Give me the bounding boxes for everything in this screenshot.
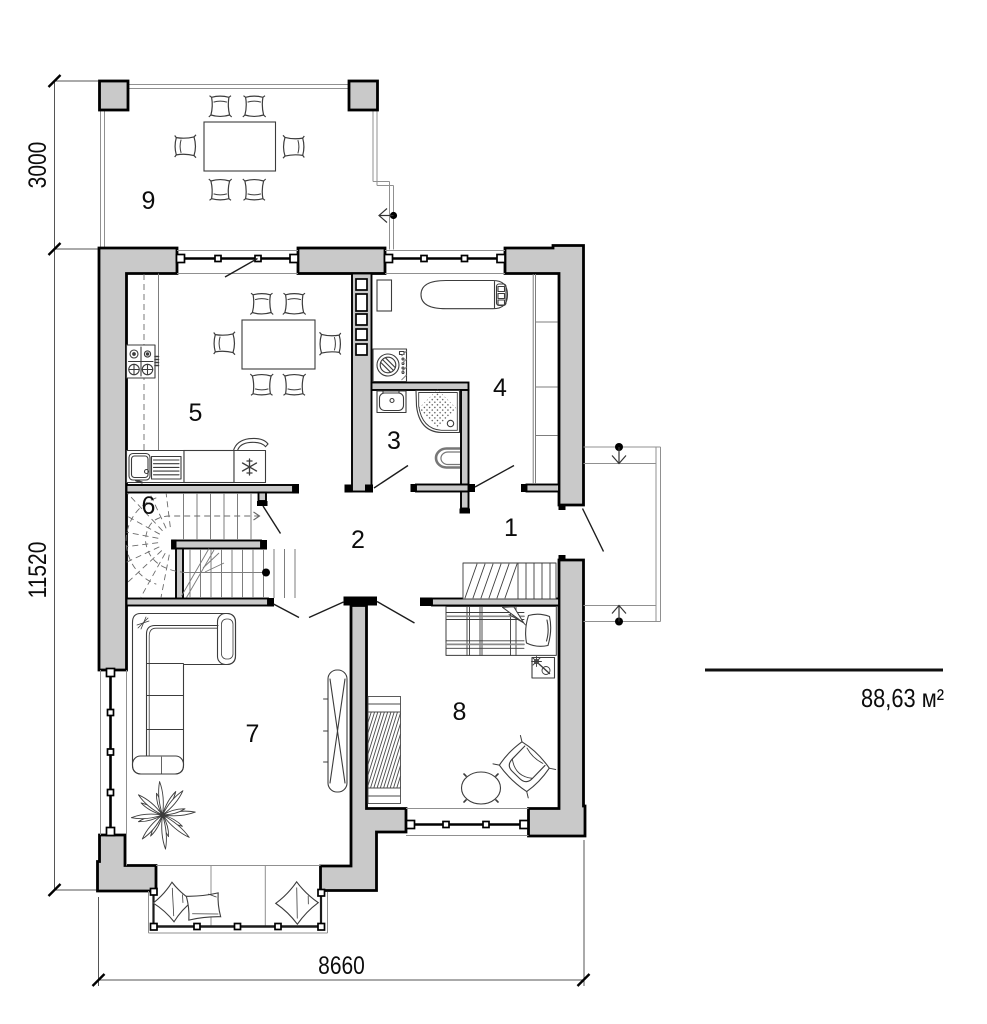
svg-text:9: 9 [142,187,156,215]
svg-text:1: 1 [504,514,518,542]
svg-text:2: 2 [351,526,365,554]
svg-text:8: 8 [453,698,467,726]
svg-text:8660: 8660 [318,951,365,979]
svg-text:6: 6 [142,492,156,520]
svg-text:3000: 3000 [23,142,51,189]
svg-text:5: 5 [189,399,203,427]
svg-text:4: 4 [493,374,507,402]
svg-text:11520: 11520 [23,542,51,599]
svg-text:7: 7 [246,720,260,748]
svg-text:88,63 м²: 88,63 м² [861,684,944,713]
svg-text:3: 3 [387,427,401,455]
